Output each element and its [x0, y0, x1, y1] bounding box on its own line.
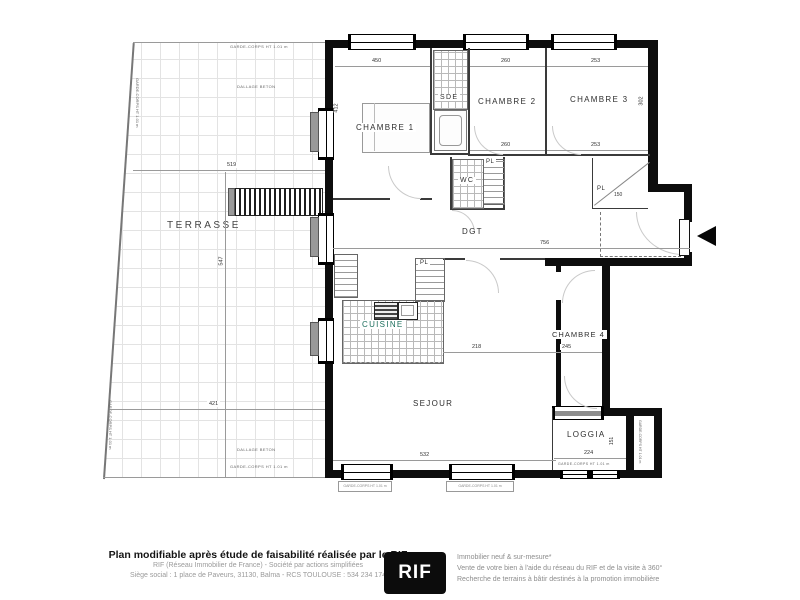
dim-chambre2-bottom: 260	[499, 142, 512, 148]
window-sejour-2	[449, 464, 515, 480]
sink-basin	[401, 305, 414, 316]
window-loggia-rail-2	[590, 470, 620, 479]
window-chambre2	[463, 34, 529, 50]
window-west-1	[318, 108, 334, 160]
closet-label-entry: PL	[595, 186, 607, 192]
wall-chambre4-left-b	[556, 300, 561, 416]
terrace-garde-corps-left-note-1: GARDE-CORPS HT 1.01 m	[135, 78, 140, 128]
dim-line-chambre2-top	[470, 66, 545, 67]
room-label-chambre4: CHAMBRE 4	[550, 330, 607, 339]
dim-chambre3-top: 253	[589, 58, 602, 64]
part-chambre2-3	[545, 48, 547, 156]
rif-logo: RIF	[384, 552, 446, 594]
terrace-garde-corps-top-note: GARDE-CORPS HT 1.01 m	[230, 44, 288, 49]
dim-terrace-height: 547	[219, 256, 225, 265]
wall-entry-bump-top	[648, 184, 692, 192]
room-label-sejour: SEJOUR	[413, 399, 453, 408]
wc-floor-tiles	[452, 159, 484, 209]
room-label-terrasse: TERRASSE	[167, 220, 241, 231]
wall-right-upper	[648, 40, 658, 192]
dim-line-dgt	[333, 248, 690, 249]
window-west-2	[318, 213, 334, 265]
wall-loggia-right	[654, 408, 662, 478]
dim-line-sejour-top	[443, 352, 602, 353]
closet-dgt-left-shelves	[334, 254, 358, 298]
rif-logo-text: RIF	[398, 562, 432, 584]
terrace-dallage-top-note: DALLAGE BETON	[237, 84, 275, 89]
window-west-sill-1	[310, 112, 319, 152]
floor-plan-page: TERRASSE GARDE-CORPS HT 1.01 m DALLAGE B…	[0, 0, 800, 600]
wall-chambre4-left-a	[556, 262, 561, 272]
footer-legal-block: Plan modifiable après étude de faisabili…	[92, 549, 424, 581]
entry-door-leaf	[679, 219, 690, 256]
terrace-pergola-cap-left	[228, 188, 235, 216]
room-label-dgt: DGT	[462, 227, 483, 236]
dim-closet-entry: 150	[612, 192, 624, 198]
footer-service-2: Vente de votre bien à l'aide du réseau d…	[457, 564, 757, 575]
terrace-pergola-hatch	[233, 188, 323, 216]
part-sde-bottom	[430, 153, 470, 155]
footer-service-3: Recherche de terrains à bâtir destinés à…	[457, 575, 757, 586]
door-arc-sejour	[466, 260, 499, 293]
window-chambre1	[348, 34, 416, 50]
wall-loggia-inner-post	[626, 416, 634, 470]
dim-chambre3-bottom: 253	[589, 142, 602, 148]
dim-chambre1-top: 450	[370, 58, 383, 64]
door-arc-loggia	[564, 376, 597, 409]
room-label-wc: WC	[458, 177, 476, 184]
room-label-cuisine: CUISINE	[360, 320, 406, 329]
part-chambre1-bottom-a	[333, 198, 390, 200]
dim-dgt: 756	[538, 240, 551, 246]
dim-line-loggia	[554, 458, 626, 459]
window-west-sill-3	[310, 322, 319, 356]
wall-loggia-top	[600, 408, 662, 416]
dim-line-chambre3-top	[547, 66, 648, 67]
terrace-dallage-bottom-note: DALLAGE BETON	[237, 447, 275, 452]
entry-vestibule-dashed	[600, 212, 681, 257]
closet-wc-shelves	[483, 159, 505, 205]
footer-title: Plan modifiable après étude de faisabili…	[92, 549, 424, 561]
loggia-garde-corps-note: GARDE-CORPS HT 1.01 m	[558, 462, 610, 466]
dim-line-chambre2-bot	[470, 150, 545, 151]
terrace-bottom-edge	[103, 477, 330, 478]
dim-chambre3-right: 302	[639, 96, 645, 105]
room-label-chambre2: CHAMBRE 2	[478, 97, 536, 106]
dim-line-terrace-top	[133, 170, 330, 171]
wall-entry-bump-right-a	[684, 192, 692, 222]
footer-address-line: Siège social : 1 place de Paveurs, 31130…	[92, 571, 424, 581]
sde-floor-tiles	[433, 50, 468, 110]
closet-label-wc: PL	[484, 159, 496, 165]
window-loggia-rail-1	[560, 470, 590, 479]
terrace-top-edge	[133, 42, 330, 43]
window-west-sill-2	[310, 217, 319, 257]
window-label-sejour-2: GARDE-CORPS HT 1.01 m	[446, 481, 514, 492]
dim-chambre1-left: 412	[334, 103, 340, 112]
room-label-chambre1: CHAMBRE 1	[354, 123, 416, 132]
dim-loggia: 224	[582, 450, 595, 456]
part-dgt-sejour-a	[443, 258, 465, 260]
cuisine-open-edge	[342, 362, 443, 363]
window-label-sejour-1: GARDE-CORPS HT 1.01 m	[338, 481, 392, 492]
room-label-sde: SDE	[438, 94, 460, 101]
closet-label-cuisine: PL	[418, 260, 430, 266]
dim-line-chambre1	[335, 66, 430, 67]
part-chambre2-left	[468, 48, 470, 156]
window-west-3	[318, 318, 334, 364]
part-pl-entry-bottom	[592, 208, 648, 209]
footer-service-1: Immobilier neuf & sur-mesure*	[457, 553, 757, 564]
footer-company-line: RIF (Réseau Immobilier de France) - Soci…	[92, 561, 424, 571]
window-chambre3	[551, 34, 617, 50]
loggia-right-note: GARDE-CORPS HT 1.01 m	[638, 420, 642, 463]
part-dgt-sejour-b	[500, 258, 545, 260]
door-arc-chambre1	[388, 166, 421, 199]
door-arc-chambre4	[562, 270, 595, 303]
dim-sejour-bottom: 532	[418, 452, 431, 458]
terrace-garde-corps-bottom-note: GARDE-CORPS HT 1.01 m	[230, 464, 288, 469]
cooktop	[374, 302, 398, 320]
dim-line-sejour-bottom	[333, 460, 556, 461]
part-chambre1-bottom-b	[420, 198, 432, 200]
dim-terrace-width: 519	[225, 162, 238, 168]
dim-line-terrace-bottom	[110, 409, 330, 410]
room-label-loggia: LOGGIA	[565, 430, 607, 439]
dim-sejour-top: 218	[470, 344, 483, 350]
footer-services-block: Immobilier neuf & sur-mesure* Vente de v…	[457, 553, 757, 586]
dim-terrace-bottom: 421	[207, 401, 220, 407]
dim-line-chambre3-bot	[547, 150, 648, 151]
dim-loggia-right: 151	[609, 437, 615, 445]
window-sejour-1	[341, 464, 393, 480]
terrace-garde-corps-left-note-2: GARDE-CORPS HT 1.01 m	[108, 400, 113, 450]
dim-line-terrace-vert	[225, 172, 226, 477]
dim-chambre2-top: 260	[499, 58, 512, 64]
dim-chambre4: 245	[560, 344, 573, 350]
room-label-chambre3: CHAMBRE 3	[570, 95, 628, 104]
part-chambre1-sde	[430, 48, 432, 155]
entrance-arrow-icon	[697, 226, 716, 246]
shower-inner	[439, 115, 462, 146]
wall-below-entry	[545, 258, 692, 266]
